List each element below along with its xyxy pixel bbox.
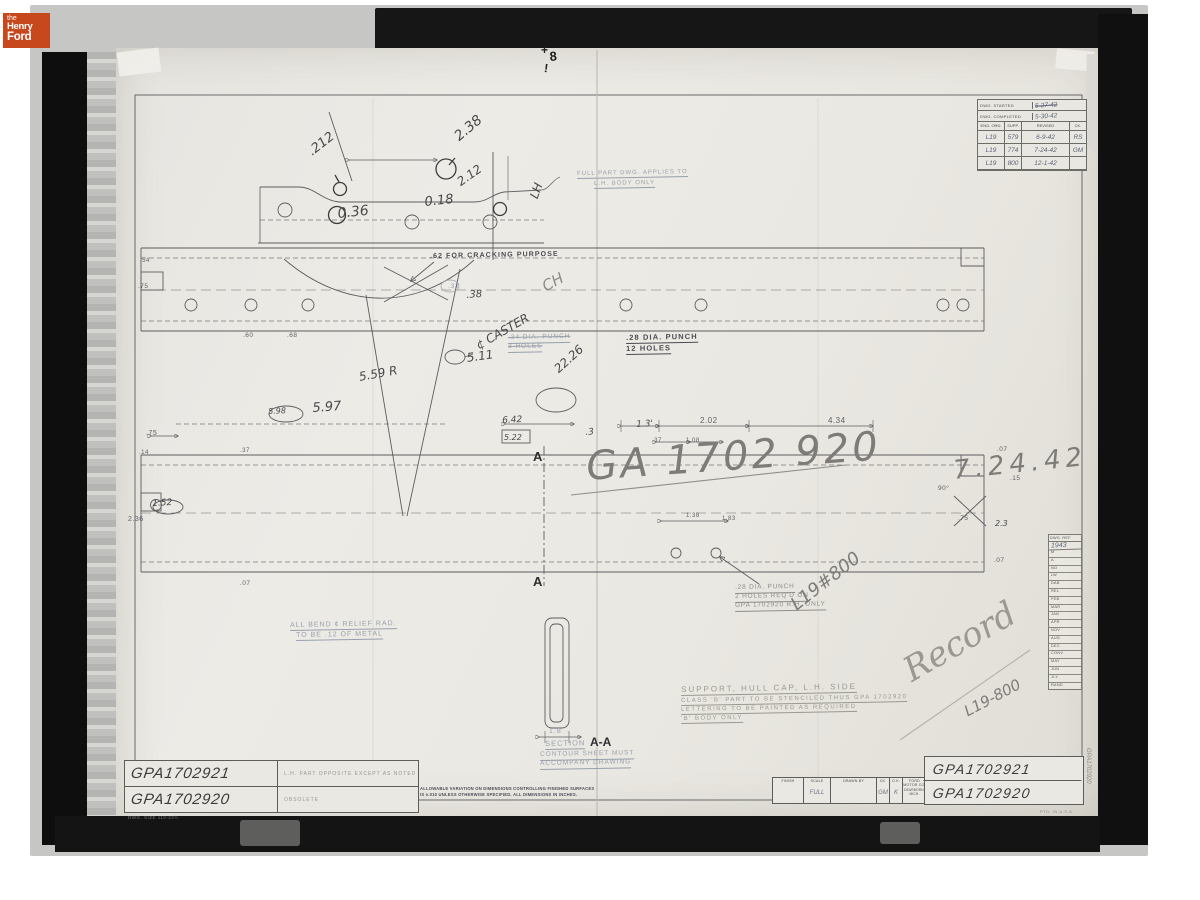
rev-col-engord: ENG. ORD. [978, 122, 1004, 130]
photo-dark-bar-right [1098, 14, 1148, 845]
reference-table-row: NOV [1049, 628, 1081, 636]
lower-band-view [141, 446, 986, 586]
title-block-right-numbers: GPA1702921 GPA1702920 [924, 756, 1084, 805]
revision-table: DWG. STARTED 5-27-42 DWG. COMPLETED 5-30… [977, 99, 1087, 171]
middle-dimensions [151, 280, 873, 443]
tolerance-line1: ALLOWABLE VARIATION ON DIMENSIONS CONTRO… [420, 786, 625, 792]
reference-table-row: JLY [1049, 675, 1081, 683]
reference-table-row: AUG [1049, 636, 1081, 644]
rev-col-supp: SUPP. [1004, 122, 1021, 130]
tolerance-note: ALLOWABLE VARIATION ON DIMENSIONS CONTRO… [420, 786, 625, 797]
title-part-number-921: GPA1702921 [923, 757, 1084, 781]
reference-table-year: 1943 [1049, 541, 1081, 550]
title-part-number-920: GPA1702920 [923, 781, 1084, 804]
reference-table-row: MAR [1049, 605, 1081, 613]
reference-table-row: LW [1049, 573, 1081, 581]
photo-dark-band-top [375, 8, 1132, 50]
cell-finish: FINISH [773, 778, 803, 803]
cell-ck: CK.GM [876, 778, 889, 803]
photo-blemish [240, 820, 300, 846]
reference-table-rows: MANOLWDABRELFEBMARJANAPRNOVAUGDECCONVMAY… [1049, 550, 1081, 689]
reference-table-row: CONV [1049, 651, 1081, 659]
henry-ford-logo[interactable]: the Henry Ford [3, 13, 50, 48]
reference-table-row: MAY [1049, 659, 1081, 667]
photo-dark-bar-left [42, 52, 87, 845]
reference-table-row: DAB [1049, 581, 1081, 589]
drawing-reference-table: DWG. REF. 1943 MANOLWDABRELFEBMARJANAPRN… [1048, 534, 1082, 690]
part-number-920: GPA1702920 [123, 787, 279, 812]
drawing-lines [116, 48, 1103, 818]
handwriting-flourishes [900, 650, 1030, 740]
reference-table-row: M [1049, 550, 1081, 558]
rev-started-value: 5-27-42 [1035, 101, 1058, 110]
reference-table-row: DEC [1049, 644, 1081, 652]
rev-completed-label: DWG. COMPLETED [978, 113, 1032, 120]
cell-drawn-by: DRAWN BY [830, 778, 876, 803]
section-view [539, 618, 581, 743]
cell-ford-motor: FORD MOTOR CO. DEARBORN, MICH. [902, 778, 926, 803]
reference-table-row: JUN [1049, 667, 1081, 675]
printed-in-usa-note: PTD. IN U.S.A. [1040, 809, 1074, 814]
revision-row: L19579 6-9-42RS [978, 131, 1086, 144]
rev-col-revised: REVISED [1021, 122, 1069, 130]
logo-ford: Ford [7, 32, 50, 44]
reference-table-row: REL [1049, 589, 1081, 597]
title-left-row: GPA1702920 OBSOLETE [125, 787, 418, 812]
part-desc-920: OBSOLETE [277, 787, 418, 812]
reference-table-row: APR [1049, 620, 1081, 628]
title-block-right-cells: FINISH SCALEFULL DRAWN BY CK.GM O.K.K FO… [772, 777, 927, 804]
title-left-row: GPA1702921 L.H. PART OPPOSITE EXCEPT AS … [125, 761, 418, 787]
rev-completed-value: 5-30-42 [1035, 112, 1058, 121]
reference-table-row: JAN [1049, 612, 1081, 620]
reference-table-row: RAND [1049, 683, 1081, 690]
rev-col-ck: CK. [1069, 122, 1086, 130]
reference-table-row: A [1049, 558, 1081, 566]
rev-started-label: DWG. STARTED [978, 102, 1032, 109]
part-desc-921: L.H. PART OPPOSITE EXCEPT AS NOTED [277, 761, 418, 786]
part-number-921: GPA1702921 [123, 761, 279, 786]
photo-dark-band-bottom [55, 816, 1100, 852]
archival-scan-page: the Henry Ford DWG. STARTED 5-27-42 DWG.… [0, 0, 1200, 900]
drawing-border [135, 95, 1082, 800]
revision-row: L19774 7-24-42GM [978, 144, 1086, 157]
detail-view [258, 112, 560, 260]
upper-band-view [141, 248, 984, 516]
photo-blemish [880, 822, 920, 844]
tolerance-line2: IS ±.010 UNLESS OTHERWISE SPECIFIED. ALL… [420, 792, 625, 798]
drawing-size-note: DWG. SIZE 110-22½ [128, 815, 179, 820]
title-block-left: GPA1702921 L.H. PART OPPOSITE EXCEPT AS … [124, 760, 419, 813]
revision-row: L19800 12-1-42 [978, 157, 1086, 170]
reference-table-row: FEB [1049, 597, 1081, 605]
cell-scale: SCALEFULL [803, 778, 830, 803]
cell-ok: O.K.K [889, 778, 902, 803]
reference-table-row: NO [1049, 566, 1081, 574]
